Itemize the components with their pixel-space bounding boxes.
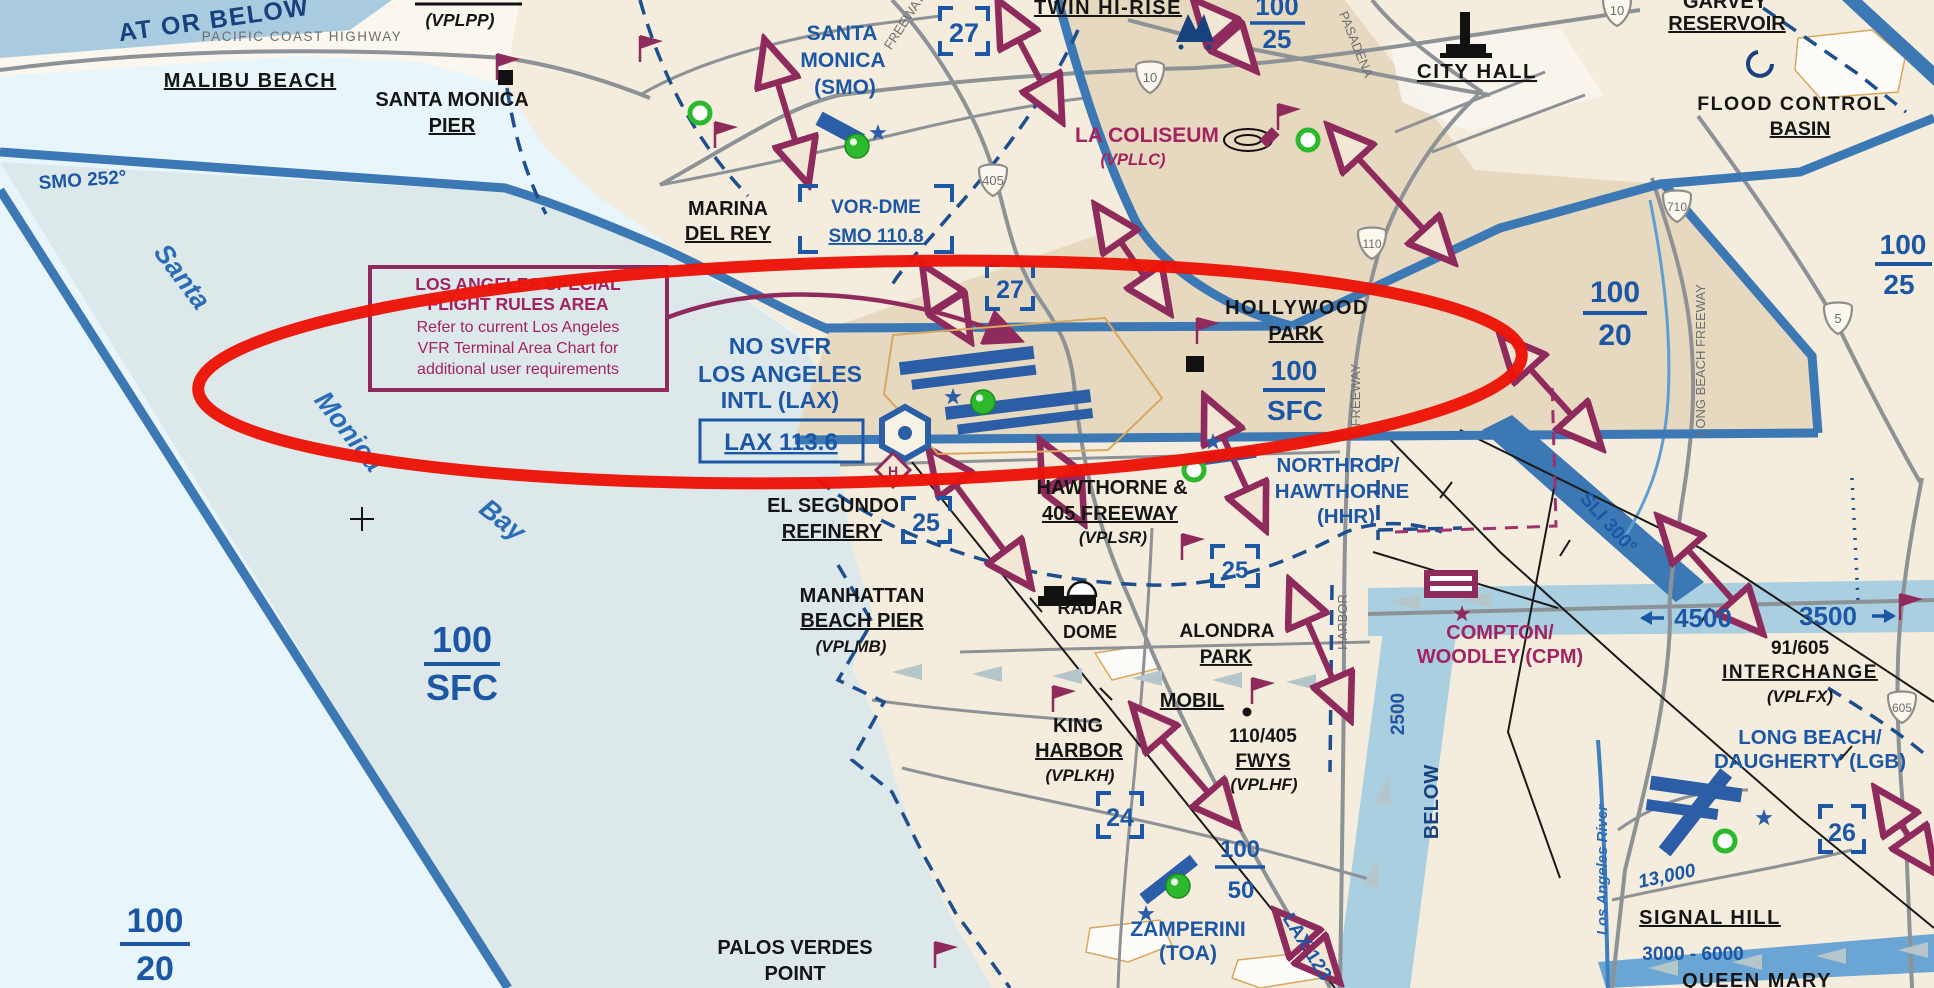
toa-airport-label: ZAMPERINI [1130, 918, 1246, 941]
svg-text:710: 710 [1667, 200, 1687, 214]
alondra-park-label: ALONDRA [1180, 621, 1275, 642]
king-harbor-label: (VPLKH) [1046, 766, 1115, 785]
grid-number-24: 24 [1106, 804, 1134, 832]
hollywood-altitude-num: 100 [1271, 355, 1318, 386]
marina-del-rey-label: MARINA [688, 198, 768, 220]
el-segundo-label: REFINERY [782, 521, 883, 543]
harbor-freeway-label: HARBOR [1335, 594, 1350, 650]
la-river-label: Los Angeles River [1594, 804, 1611, 935]
manhattan-pier-label: BEACH PIER [800, 610, 924, 632]
smo-airport-label: SANTA [807, 22, 878, 45]
sw-altitude-num: 100 [127, 902, 184, 940]
grid-number-27: 27 [949, 18, 979, 48]
smo-airport-label: (SMO) [814, 76, 876, 99]
svg-text:10: 10 [1143, 70, 1157, 85]
grid-number-25: 25 [1222, 557, 1249, 584]
91-605-interchange-label: 91/605 [1771, 638, 1830, 659]
lax-name-label: LOS ANGELES [698, 361, 862, 387]
toa-airport-label: (TOA) [1159, 942, 1217, 965]
manhattan-pier-label: MANHATTAN [800, 585, 925, 607]
lax-freq-label: LAX 113.6 [724, 429, 837, 456]
coliseum-checkpoint-ring [1298, 130, 1318, 150]
lgb-checkpoint-ring [1715, 831, 1735, 851]
lax-name-label: INTL (LAX) [721, 387, 839, 413]
svg-text:605: 605 [1892, 701, 1912, 715]
twin-altitude-num: 100 [1255, 0, 1298, 21]
svg-text:10: 10 [1610, 3, 1624, 18]
la-coliseum-label: LA COLISEUM [1075, 124, 1219, 147]
grid-number-25: 25 [912, 509, 940, 537]
smo-vor-freq: SMO 110.8 [828, 226, 923, 247]
radar-dome-label: DOME [1063, 622, 1117, 642]
corridor-3500-label: 3500 [1799, 601, 1857, 631]
ne-altitude-den: 20 [1598, 319, 1631, 352]
grid-number-27: 27 [996, 276, 1024, 304]
below-label: BELOW [1421, 765, 1443, 840]
flood-control-label: FLOOD CONTROL [1697, 93, 1887, 115]
lgb-airport-label: LONG BEACH/ [1738, 726, 1882, 749]
santa-monica-pier-label: PIER [429, 115, 476, 137]
mountain-dot [1207, 45, 1212, 50]
corridor-4500-label: 4500 [1674, 603, 1732, 633]
hawthorne-405-label: HAWTHORNE & [1036, 477, 1187, 499]
city-hall-label: CITY HALL [1417, 60, 1537, 83]
110-405-fwys-label: FWYS [1236, 751, 1291, 772]
toa-altitude-den: 50 [1228, 877, 1255, 904]
svg-text:405: 405 [982, 173, 1004, 188]
lax-no-svfr-label: NO SVFR [729, 333, 832, 359]
bay-altitude-num: 100 [432, 619, 492, 660]
chart-viewport: H [0, 0, 1934, 988]
long-beach-freeway-label: LONG BEACH FREEWAY [1693, 284, 1708, 436]
marina-del-rey-label: DEL REY [685, 223, 772, 245]
smo-checkpoint-dot [845, 134, 869, 158]
hollywood-altitude-den: SFC [1267, 395, 1323, 426]
lgb-airport-label: DAUGHERTY (LGB) [1714, 750, 1906, 773]
la-coliseum-label: (VPLLC) [1100, 151, 1166, 169]
sw-altitude-den: 20 [136, 950, 174, 988]
110-405-fwys-label: 110/405 [1229, 726, 1297, 747]
checkpoint-ring [690, 103, 710, 123]
king-harbor-label: HARBOR [1035, 740, 1123, 762]
hhr-airport-label: HAWTHORNE [1275, 480, 1409, 503]
mountain-dot [1179, 45, 1184, 50]
sfra-note-body: Refer to current Los Angeles [417, 319, 620, 336]
east-altitude-den: 25 [1883, 269, 1914, 300]
malibu-beach-label: MALIBU BEACH [164, 70, 336, 92]
twin-altitude-den: 25 [1263, 24, 1292, 54]
hhr-airport-label: NORTHROP/ [1277, 454, 1400, 477]
flood-control-label: BASIN [1770, 118, 1831, 140]
91-605-interchange-label: INTERCHANGE [1722, 662, 1878, 683]
cpm-runway-icon [1424, 570, 1478, 598]
smo-vor-label: VOR-DME [831, 197, 921, 218]
2500-label: 2500 [1388, 693, 1409, 735]
hawthorne-405-label: (VPLSR) [1079, 528, 1147, 547]
sfra-note-body: VFR Terminal Area Chart for [418, 340, 619, 357]
110-405-fwys-label: (VPLHF) [1230, 775, 1297, 794]
91-605-interchange-label: (VPLFX) [1767, 687, 1833, 706]
santa-monica-pier-label: SANTA MONICA [375, 89, 528, 111]
hollywood-park-label: HOLLYWOOD [1225, 297, 1369, 319]
sfra-note-body: additional user requirements [417, 361, 619, 378]
signal-hill-label: SIGNAL HILL [1639, 907, 1781, 929]
hollywood-park-label: PARK [1268, 323, 1324, 345]
hhr-airport-label: (HHR) [1317, 505, 1375, 528]
lax-vor-icon [882, 407, 928, 459]
pch-label: PACIFIC COAST HIGHWAY [202, 29, 403, 44]
lax-checkpoint-dot [971, 390, 995, 414]
mobil-label: MOBIL [1160, 690, 1224, 712]
harbor-freeway-label: FREEWAY [1348, 363, 1363, 426]
manhattan-pier-label: (VPLMB) [816, 637, 887, 656]
hawthorne-405-label: 405 FREEWAY [1042, 503, 1179, 525]
alondra-park-label: PARK [1200, 647, 1253, 668]
3000-6000-label: 3000 - 6000 [1642, 944, 1743, 965]
cpm-airport-label: WOODLEY (CPM) [1417, 646, 1583, 668]
garvey-reservoir-label: GARVEY [1683, 0, 1768, 13]
vplpp-label: (VPLPP) [425, 10, 494, 30]
queen-mary-label: QUEEN MARY [1682, 970, 1832, 988]
bay-altitude-den: SFC [426, 667, 498, 708]
twin-hi-rise-label: TWIN HI-RISE [1034, 0, 1182, 19]
smo-airport-label: MONICA [800, 49, 885, 72]
sectional-chart-canvas[interactable]: H [0, 0, 1934, 988]
ne-altitude-num: 100 [1590, 276, 1640, 309]
cpm-airport-label: COMPTON/ [1446, 622, 1554, 644]
el-segundo-label: EL SEGUNDO [767, 495, 899, 517]
pier-square-icon [498, 70, 513, 85]
grid-number-26: 26 [1828, 819, 1856, 847]
svg-text:5: 5 [1834, 311, 1841, 326]
garvey-reservoir-label: RESERVOIR [1668, 13, 1786, 35]
radar-dome-label: RADAR [1058, 598, 1123, 618]
lax-corridor-north [826, 326, 1292, 328]
toa-checkpoint-dot [1166, 874, 1190, 898]
hollywood-square-icon [1186, 356, 1204, 372]
mobil-dot-icon [1243, 708, 1252, 717]
toa-altitude-num: 100 [1220, 836, 1260, 863]
svg-text:110: 110 [1362, 237, 1381, 251]
king-harbor-label: KING [1053, 715, 1103, 737]
palos-verdes-label: POINT [764, 963, 825, 985]
east-altitude-num: 100 [1880, 229, 1927, 260]
base-layer [0, 0, 1934, 988]
palos-verdes-label: PALOS VERDES [717, 937, 872, 959]
